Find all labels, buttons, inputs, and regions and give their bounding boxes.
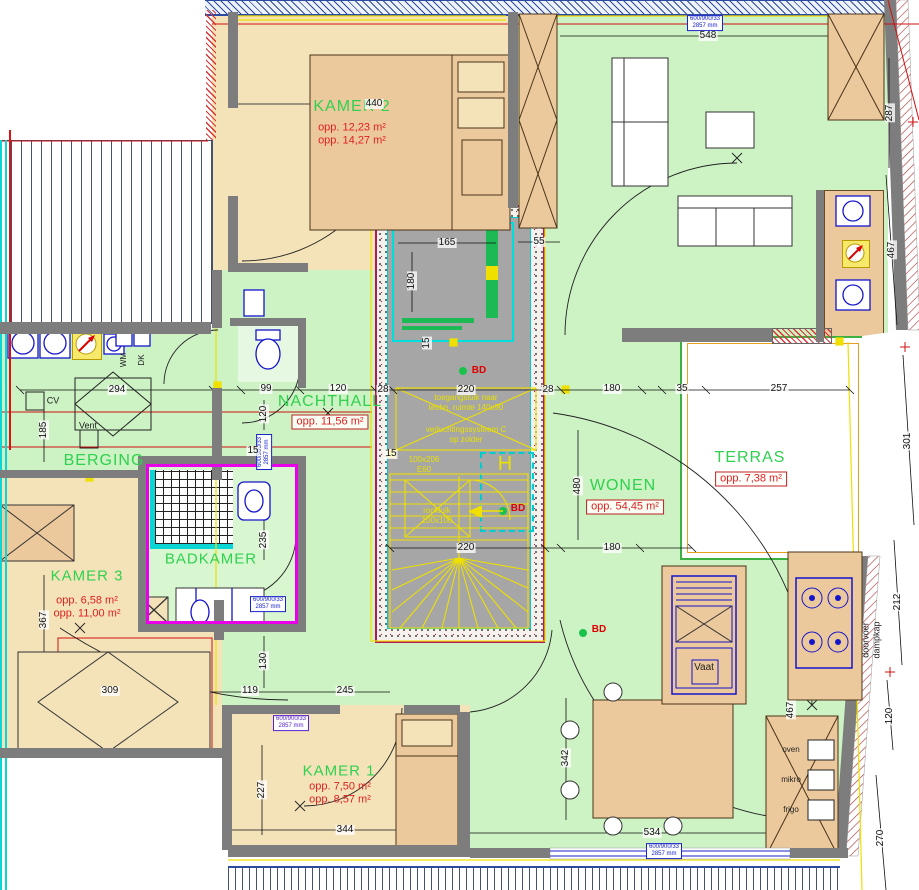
dim-294: 294 (108, 385, 127, 395)
dim-180c: 180 (603, 384, 622, 394)
dim-287: 287 (885, 104, 895, 123)
wall (0, 748, 230, 758)
dim-130: 130 (259, 652, 269, 671)
window-spec-line1: 600/900/33 (649, 844, 679, 851)
wall (228, 12, 238, 108)
bd-label-1: BD (472, 366, 486, 376)
dim-120c: 120 (329, 384, 348, 394)
dim-185: 185 (39, 421, 49, 440)
room-label-wonen: WONEN (590, 478, 656, 494)
wall (790, 848, 848, 858)
dim-99: 99 (259, 384, 272, 394)
room-label-kamer3: KAMER 3 (51, 569, 124, 584)
window-spec-line2: 2857 mm (276, 723, 306, 730)
cyan-edge-line2 (5, 140, 7, 890)
window-spec-bottom: 600/900/33 2857 mm (646, 843, 682, 859)
dim-245: 245 (336, 686, 355, 696)
roof-hatch-strip (206, 10, 216, 140)
window-spec-top: 600/900/33 2857 mm (687, 15, 723, 31)
area-label-kamer1-1: opp. 7,50 m² (309, 782, 371, 793)
wall (470, 848, 550, 858)
dim-309: 309 (101, 686, 120, 696)
dk-label: DK (138, 354, 146, 365)
dim-28r: 28 (541, 385, 554, 395)
dim-212: 212 (893, 593, 903, 612)
dim-28l: 28 (376, 385, 389, 395)
wall (238, 263, 308, 272)
area-label-kamer2-1: opp. 12,23 m² (318, 123, 386, 134)
vent-label: Vent (79, 422, 97, 431)
dim-55: 55 (532, 237, 545, 247)
dim-180v: 180 (407, 272, 417, 291)
room-label-badkamer: BADKAMER (165, 552, 257, 567)
wall (0, 470, 140, 478)
annotation-smoke-hatch-1: rookluik (423, 507, 451, 515)
oven-label: oven (782, 746, 799, 754)
room-label-kamer1: KAMER 1 (303, 764, 376, 779)
dim-119: 119 (241, 686, 259, 696)
wall (222, 705, 232, 850)
wall (228, 845, 470, 857)
window-spec-line1: 600/900/33 (253, 597, 283, 604)
sink-unit-icon (662, 566, 746, 704)
area-label-kamer3-1: opp. 6,58 m² (56, 596, 118, 607)
area-label-kamer3-2: opp. 11,00 m² (53, 609, 120, 620)
dim-180m: 180 (603, 543, 622, 553)
dim-wc120: 120 (259, 405, 269, 424)
annotation-ventilation-2: op zolder (450, 436, 483, 444)
bd-label-2: BD (511, 504, 525, 514)
window-spec-badkamer: 600/900/33 2857 mm (250, 596, 286, 612)
dim-342: 342 (561, 749, 571, 768)
area-label-kamer1-2: opp. 8,57 m² (309, 795, 371, 806)
dim-367: 367 (39, 611, 49, 630)
wall (0, 322, 211, 334)
dim-467b: 467 (786, 701, 796, 720)
wall (458, 712, 470, 850)
window-spec-kamer3: 600/900/33 2857 mm (273, 715, 309, 731)
bd-label-3: BD (592, 625, 606, 635)
dim-227: 227 (257, 781, 267, 800)
annotation-h: H (498, 454, 512, 474)
appliance-column-icon (766, 716, 838, 856)
annotation-ventilation-1: verluchtingssysteem C (426, 426, 506, 434)
area-label-kamer2-2: opp. 14,27 m² (318, 136, 386, 147)
area-label-nachthall: opp. 11,56 m² (291, 415, 368, 430)
wall (228, 196, 238, 272)
area-label-wonen: opp. 54,45 m² (586, 500, 664, 515)
annotation-door-spec-2: E60 (417, 466, 431, 474)
vaat-label: Vaat (694, 663, 714, 673)
dim-270: 270 (876, 829, 886, 848)
cooktop-icon (788, 552, 862, 700)
window-spec-line2: 2857 mm (690, 23, 720, 30)
dim-467a: 467 (887, 241, 897, 260)
window-spec-line2: 2857 mm (264, 437, 271, 467)
mikro-label: mikro (781, 776, 801, 784)
window-spec-line2: 2857 mm (649, 851, 679, 858)
dim-15b: 15 (384, 449, 397, 459)
window-spec-line1: 600/900/33 (690, 16, 720, 23)
red-edge-line (9, 130, 11, 450)
dampkap-label-2: dampkap (873, 621, 882, 658)
wall (212, 270, 222, 328)
dim-220m: 220 (457, 543, 476, 553)
dampkap-label-1: doorvoer (862, 622, 871, 658)
wall (508, 12, 518, 208)
dim-220: 220 (457, 385, 476, 395)
wall (622, 328, 772, 342)
dim-440: 440 (365, 99, 384, 109)
dim-15a: 15 (246, 446, 259, 456)
room-label-nachthall: NACHTHALL (278, 394, 382, 410)
dim-35: 35 (675, 384, 688, 394)
dim-344: 344 (336, 825, 355, 835)
wall (404, 705, 460, 714)
bed-kamer1 (396, 714, 458, 846)
frigo-label: frigo (783, 806, 799, 814)
cyan-edge-line (0, 140, 2, 890)
annotation-door-spec-1: 100x206 (409, 456, 440, 464)
dim-120r: 120 (885, 707, 895, 726)
wall (228, 705, 340, 714)
sofa-icon (612, 58, 792, 246)
room-label-berging: BERGING (64, 453, 145, 469)
wall (230, 318, 306, 326)
dim-15s: 15 (422, 336, 432, 349)
annotation-access-hatch-2: techn. ruimte 140x90 (429, 404, 504, 412)
window-spec-line2: 2857 mm (253, 604, 283, 611)
dim-235: 235 (259, 531, 269, 550)
annotation-access-hatch-1: toegangsluik naar (434, 394, 497, 402)
area-label-terras: opp. 7,38 m² (715, 472, 787, 487)
dining-table-icon (561, 683, 733, 835)
dim-165: 165 (438, 238, 457, 248)
dim-301: 301 (903, 432, 913, 451)
floor-plan: KAMER 2 opp. 12,23 m² opp. 14,27 m² NACH… (0, 0, 919, 890)
window-spec-line1: 600/900/33 (276, 716, 306, 723)
room-label-terras: TERRAS (715, 450, 786, 466)
dim-257: 257 (770, 384, 789, 394)
wall (816, 190, 824, 342)
wm-label: WM (120, 353, 128, 367)
dim-548: 548 (699, 31, 718, 41)
cv-label: CV (47, 397, 60, 406)
dim-480: 480 (573, 477, 583, 496)
dim-534: 534 (643, 828, 662, 838)
wall (298, 318, 306, 388)
annotation-smoke-hatch-2: 100x100 (422, 517, 453, 525)
